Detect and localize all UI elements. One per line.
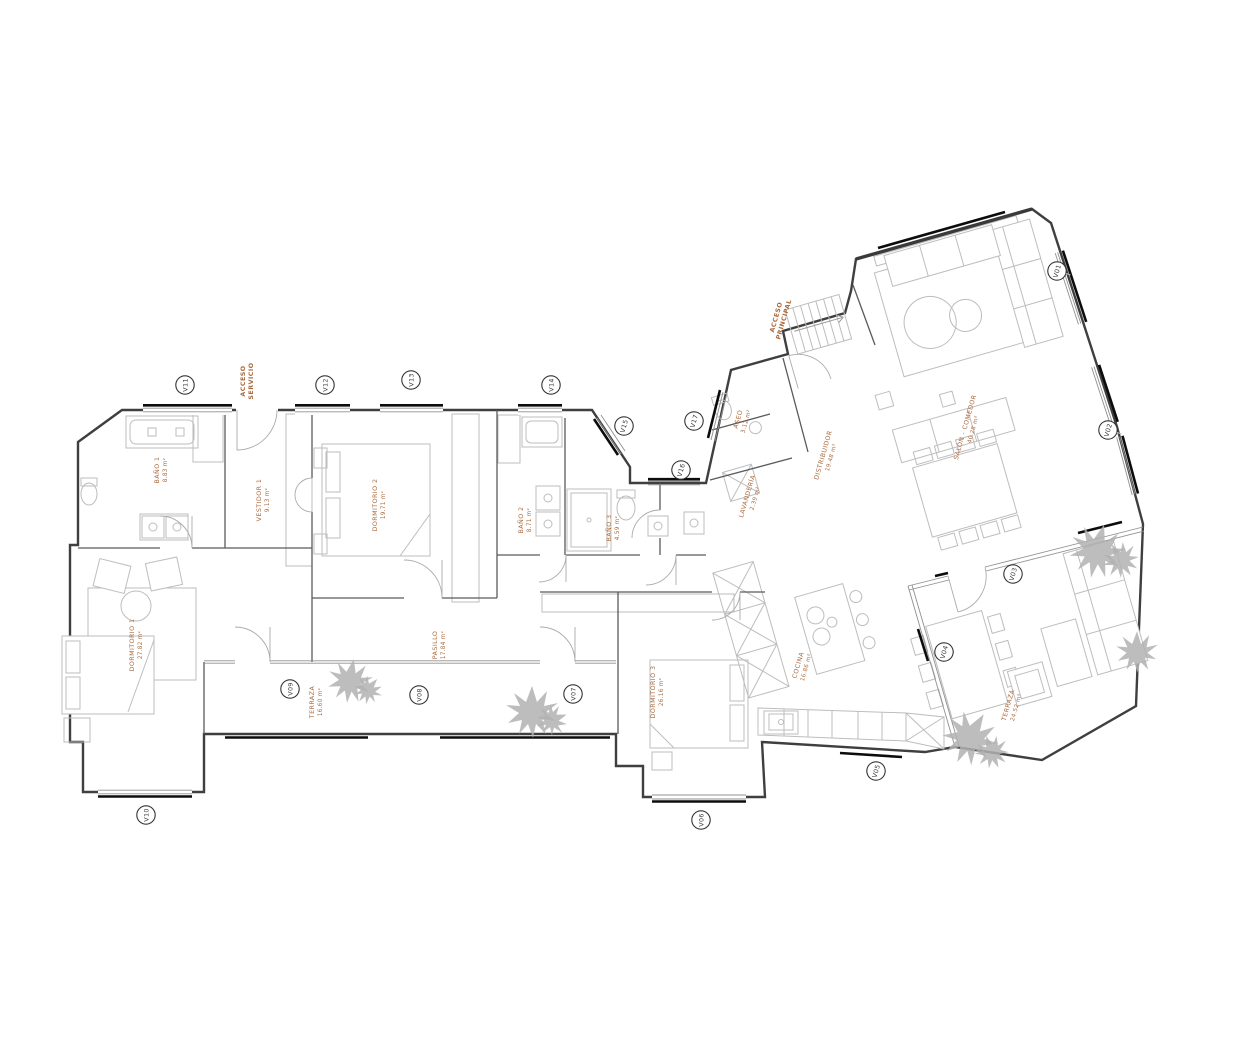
svg-text:SERVICIO: SERVICIO xyxy=(248,362,255,399)
room-label-bano-2: BAÑO 28.71 m² xyxy=(516,506,533,533)
svg-text:V06: V06 xyxy=(697,813,705,826)
svg-text:V11: V11 xyxy=(181,378,189,391)
window-badge-v15: V15 xyxy=(613,415,636,438)
svg-text:BAÑO 1: BAÑO 1 xyxy=(152,456,161,483)
svg-text:V13: V13 xyxy=(407,373,415,386)
svg-text:8.71 m²: 8.71 m² xyxy=(526,508,533,532)
svg-text:4.59 m²: 4.59 m² xyxy=(614,516,621,540)
svg-text:9.13 m²: 9.13 m² xyxy=(264,488,271,512)
svg-text:V08: V08 xyxy=(415,688,423,701)
window-badge-v08: V08 xyxy=(410,686,428,704)
svg-text:V09: V09 xyxy=(286,682,294,695)
window-badge-v17: V17 xyxy=(683,410,706,433)
window-badge-v09: V09 xyxy=(281,680,299,698)
floor-plan-canvas: BAÑO 18.83 m² VESTIDOR 19.13 m² DORMITOR… xyxy=(0,0,1248,1038)
svg-text:V07: V07 xyxy=(569,687,577,700)
svg-text:ACCESO: ACCESO xyxy=(240,365,247,396)
floor-plan: BAÑO 18.83 m² VESTIDOR 19.13 m² DORMITOR… xyxy=(0,0,1248,1038)
window-badge-v12: V12 xyxy=(316,376,334,394)
window-badge-v05: V05 xyxy=(865,760,888,783)
svg-text:19.71 m²: 19.71 m² xyxy=(380,491,387,519)
svg-text:PASILLO: PASILLO xyxy=(432,631,439,659)
svg-text:8.83 m²: 8.83 m² xyxy=(162,458,169,482)
svg-text:DORMITORIO 3: DORMITORIO 3 xyxy=(650,666,657,719)
svg-text:17.84 m²: 17.84 m² xyxy=(440,631,447,659)
window-badge-v13: V13 xyxy=(402,371,420,389)
svg-text:VESTIDOR 1: VESTIDOR 1 xyxy=(256,479,263,522)
window-badge-v07: V07 xyxy=(564,685,582,703)
svg-text:TERRAZA: TERRAZA xyxy=(309,686,316,720)
svg-text:DORMITORIO 2: DORMITORIO 2 xyxy=(372,479,379,532)
shower xyxy=(567,489,611,551)
svg-text:DORMITORIO 1: DORMITORIO 1 xyxy=(129,619,136,672)
window-badge-v10: V10 xyxy=(137,806,155,824)
window-badge-v11: V11 xyxy=(176,376,194,394)
access-servicio-label: ACCESOSERVICIO xyxy=(240,362,255,399)
svg-text:V12: V12 xyxy=(321,378,329,391)
svg-text:V14: V14 xyxy=(547,378,555,391)
window-badge-v06: V06 xyxy=(692,811,710,829)
window-badge-v14: V14 xyxy=(542,376,560,394)
svg-text:16.60 m²: 16.60 m² xyxy=(317,688,324,716)
svg-text:V10: V10 xyxy=(142,808,150,821)
svg-text:26.16 m²: 26.16 m² xyxy=(658,678,665,706)
svg-text:BAÑO 2: BAÑO 2 xyxy=(516,506,525,533)
room-label-bano-3: BAÑO 34.59 m² xyxy=(604,514,621,541)
svg-text:BAÑO 3: BAÑO 3 xyxy=(604,514,613,541)
svg-text:27.82 m²: 27.82 m² xyxy=(137,631,144,659)
room-label-bano-1: BAÑO 18.83 m² xyxy=(152,456,169,483)
bathtub-1 xyxy=(126,416,198,448)
